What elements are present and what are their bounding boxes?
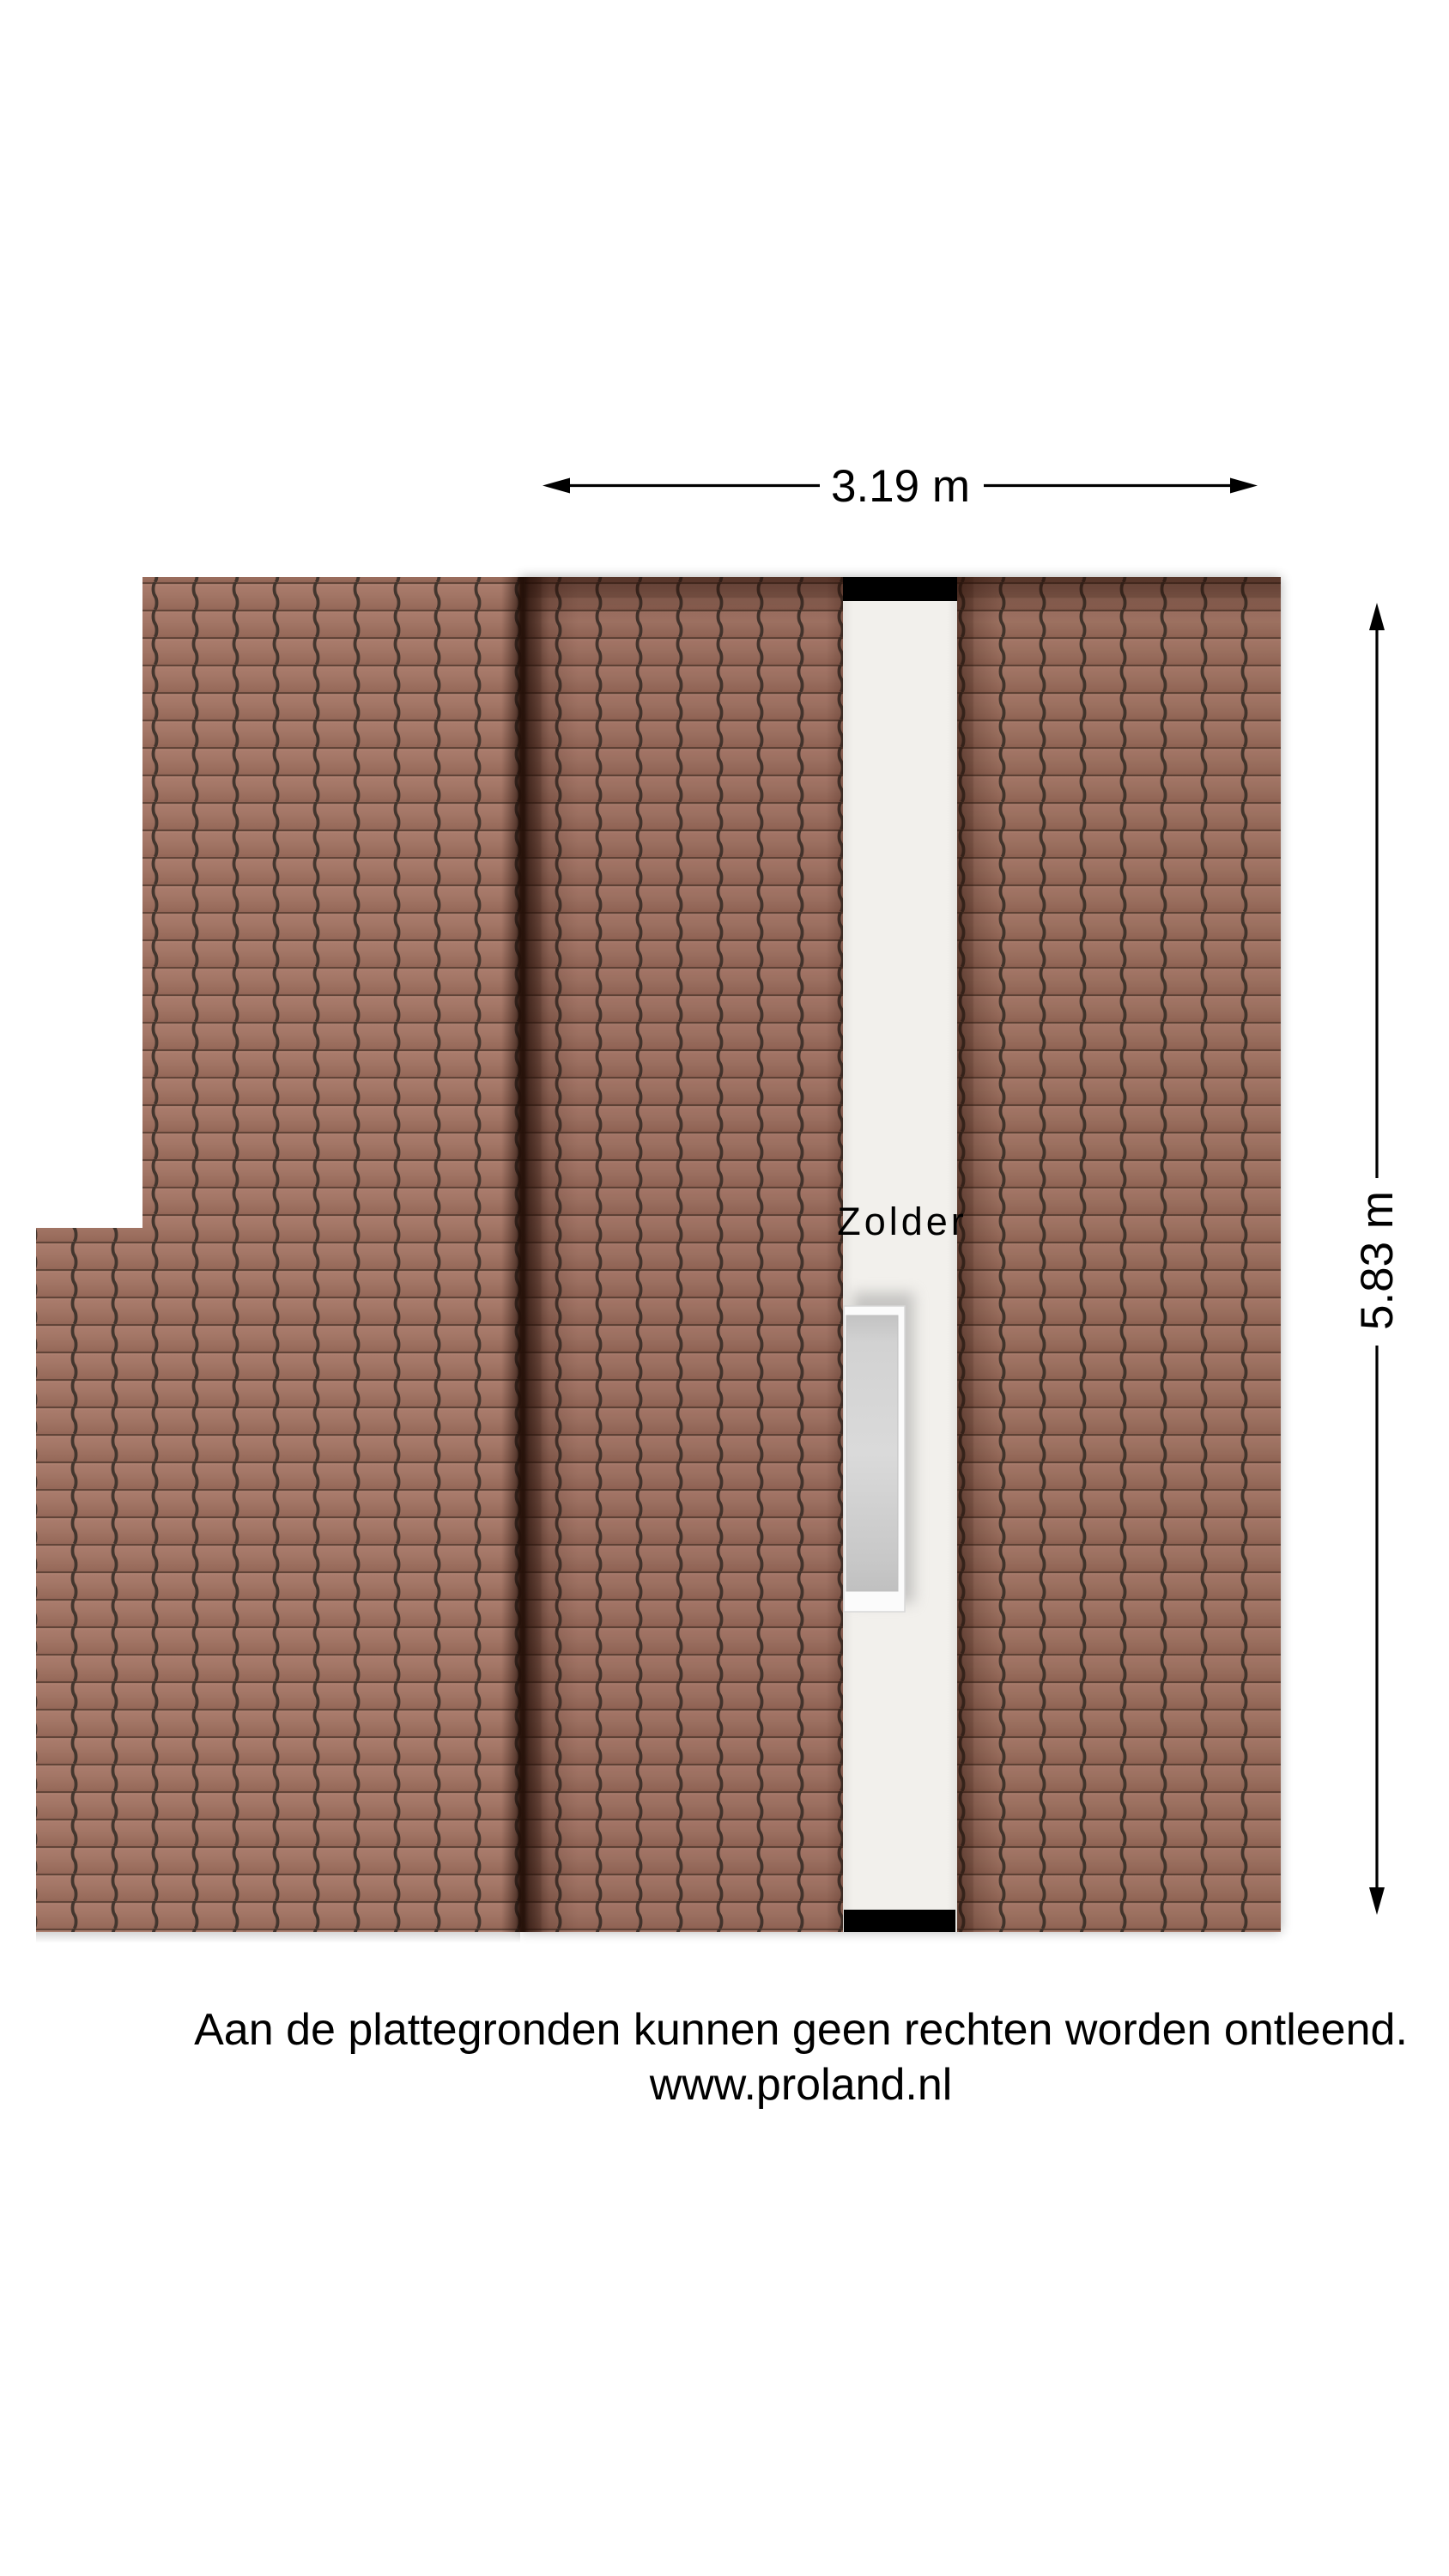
svg-text:5.83 m: 5.83 m (1352, 1191, 1403, 1330)
svg-text:Aan de plattegronden kunnen ge: Aan de plattegronden kunnen geen rechten… (194, 2005, 1408, 2055)
svg-text:3.19 m: 3.19 m (831, 461, 970, 512)
svg-text:Zolder: Zolder (837, 1200, 967, 1243)
svg-text:www.proland.nl: www.proland.nl (649, 2060, 953, 2110)
